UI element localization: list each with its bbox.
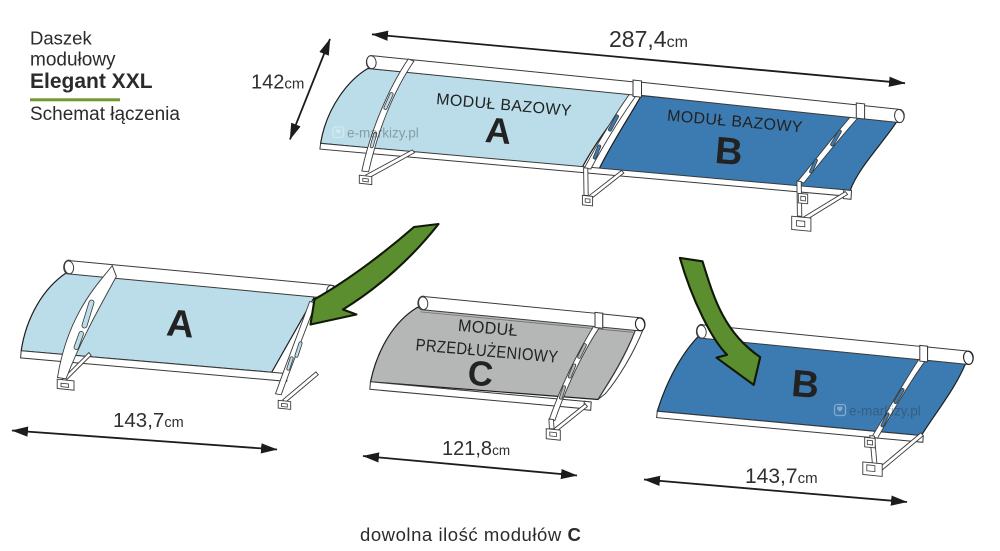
svg-text:C: C bbox=[466, 353, 495, 394]
svg-text:A: A bbox=[484, 109, 513, 152]
svg-text:dowolna ilość modułów C: dowolna ilość modułów C bbox=[360, 524, 581, 545]
svg-text:e-markizy.pl: e-markizy.pl bbox=[347, 126, 419, 141]
svg-text:e-markizy.pl: e-markizy.pl bbox=[849, 404, 921, 419]
svg-text:Elegant XXL: Elegant XXL bbox=[30, 70, 153, 93]
svg-text:B: B bbox=[790, 363, 821, 407]
svg-text:B: B bbox=[713, 130, 744, 174]
svg-text:142cm: 142cm bbox=[251, 72, 304, 94]
svg-text:Daszek: Daszek bbox=[30, 28, 92, 49]
svg-text:A: A bbox=[165, 302, 196, 346]
svg-text:Schemat łączenia: Schemat łączenia bbox=[30, 104, 180, 125]
svg-text:modułowy: modułowy bbox=[30, 50, 116, 71]
